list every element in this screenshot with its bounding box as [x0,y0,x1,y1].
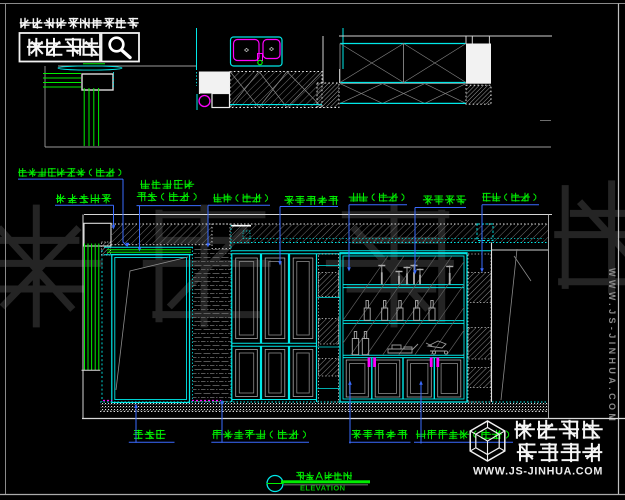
svg-text:ELEVATION: ELEVATION [300,484,345,493]
svg-text:WWW.JS-JINHUA.COM: WWW.JS-JINHUA.COM [473,466,603,478]
svg-text:WWW.JS-JINHUA.COM: WWW.JS-JINHUA.COM [607,268,617,424]
